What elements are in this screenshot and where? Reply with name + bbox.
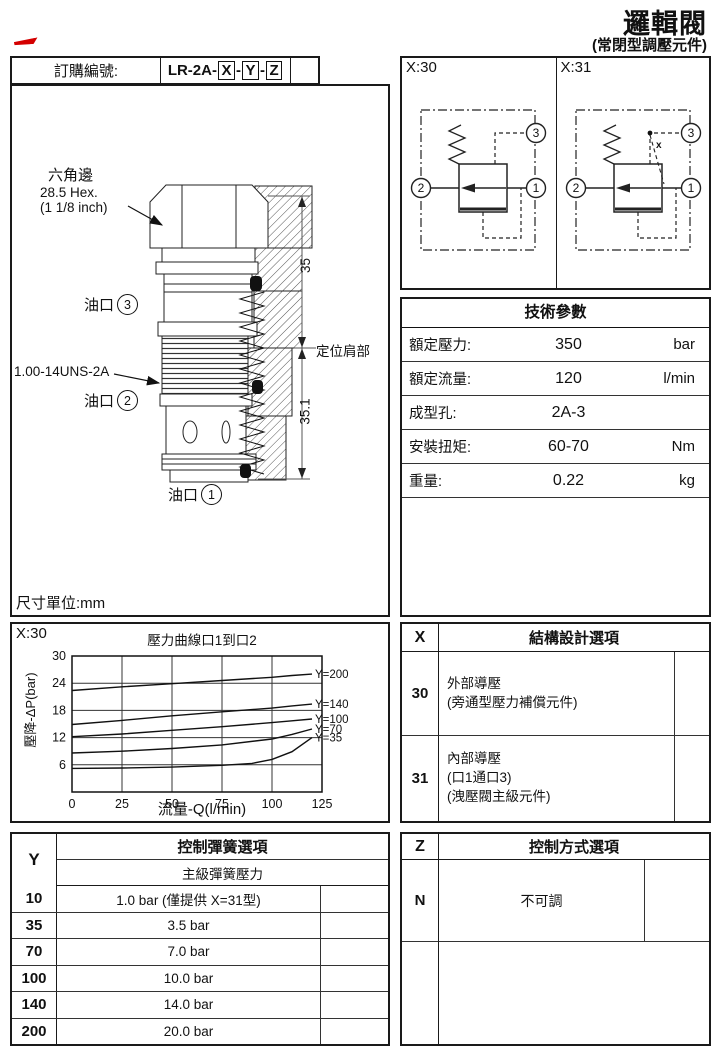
chart-corner-label: X:30 (16, 625, 47, 642)
param-label: 成型孔: (402, 402, 510, 423)
order-code-sep1: - (236, 62, 241, 79)
curve-Y=70 (72, 729, 312, 753)
datasheet-page: 邏輯閥 (常閉型調壓元件) 訂購編號: LR-2A-X-Y-Z (0, 0, 713, 1053)
desc-line: (洩壓閥主級元件) (447, 788, 666, 807)
y-option-code: 35 (12, 913, 57, 939)
hex-label-inch: (1 1/8 inch) (40, 200, 108, 215)
y-tick-label: 18 (52, 703, 66, 717)
param-unit: l/min (627, 370, 709, 387)
pressure-curve-plot: 0255075100125612182430Y=200Y=140Y=100Y=7… (20, 646, 384, 814)
spring (449, 125, 465, 164)
desc-line: 內部導壓 (447, 750, 666, 769)
pilot-junction-dot (647, 131, 652, 136)
y-option-code: 200 (12, 1019, 57, 1045)
x-option-code-31: 31 (402, 736, 439, 821)
z-table-title: 控制方式選項 (439, 834, 709, 860)
param-label: 重量: (402, 470, 510, 491)
y-option-spare-cell (320, 1019, 388, 1045)
port2-number-circle: 2 (117, 390, 138, 411)
hydraulic-symbols-box: X:30 213 X:31 x213 (400, 56, 711, 290)
pilot-line-port3 (650, 133, 682, 164)
curve-Y=140 (72, 704, 312, 724)
order-code-prefix: LR-2A- (168, 62, 217, 79)
desc-line: (旁通型壓力補償元件) (447, 694, 666, 713)
param-value: 350 (510, 336, 627, 354)
y-option-value: 3.5 bar (57, 913, 320, 939)
order-number-box: 訂購編號: LR-2A-X-Y-Z (10, 56, 320, 85)
y-table-subtitle: 主級彈簧壓力 (57, 860, 388, 886)
y-tick-label: 12 (52, 731, 66, 745)
tech-param-row: 安裝扭矩: 60-70 Nm (402, 430, 709, 464)
thread-leader-arrow (114, 374, 159, 383)
param-value: 0.22 (510, 472, 627, 490)
y-option-row: 200 20.0 bar (12, 1019, 388, 1045)
order-code: LR-2A-X-Y-Z (160, 58, 290, 83)
shoulder-label: 定位肩部 (316, 340, 370, 360)
x-table-title: 結構設計選項 (439, 624, 709, 652)
port2-label-text: 油口 (84, 390, 114, 411)
z-option-code-n: N (402, 860, 439, 942)
y-option-row: 140 14.0 bar (12, 992, 388, 1019)
curve-label: Y=35 (315, 733, 342, 745)
y-option-spare-cell (320, 992, 388, 1018)
spring (604, 125, 620, 164)
port1-label: 油口 1 (168, 484, 222, 505)
param-unit: kg (627, 472, 709, 489)
drawing-box: 六角邊 28.5 Hex. (1 1/8 inch) 油口 3 1.00-14U… (10, 84, 390, 617)
y-option-value: 7.0 bar (57, 939, 320, 965)
order-code-z-box: Z (266, 61, 282, 80)
symbol-x30-panel: X:30 213 (402, 58, 556, 288)
dim-35-1: 35.1 (298, 398, 313, 424)
tech-param-row: 重量: 0.22 kg (402, 464, 709, 498)
order-code-x-box: X (218, 61, 235, 80)
port2-circle-digit: 2 (418, 181, 425, 195)
port2-label: 油口 2 (84, 390, 138, 411)
curve-label: Y=140 (315, 699, 349, 711)
pilot-line-port3 (495, 133, 527, 164)
z-table-empty-right (439, 942, 709, 1044)
z-options-table: Z 控制方式選項 N 不可調 (400, 832, 711, 1046)
port1-label-text: 油口 (168, 484, 198, 505)
order-number-label: 訂購編號: (12, 58, 160, 83)
param-unit: bar (627, 336, 709, 353)
y-table-title: 控制彈簧選項 (57, 834, 388, 860)
y-option-spare-cell (320, 966, 388, 992)
hex-label-cn: 六角邊 (48, 164, 108, 185)
curve-label: Y=200 (315, 669, 349, 681)
tech-params-box: 技術參數 額定壓力: 350 bar 額定流量: 120 l/min 成型孔: … (400, 297, 711, 617)
y-option-spare-cell (320, 913, 388, 939)
symbol-x31-label: X:31 (561, 59, 592, 76)
x-option-spare-cell (674, 736, 709, 821)
y-table-col-header: Y (12, 834, 57, 886)
z-option-value-n: 不可調 (439, 860, 644, 942)
curve-Y=35 (72, 738, 312, 769)
curve-Y=200 (72, 674, 312, 690)
port2-circle-digit: 2 (572, 181, 579, 195)
y-option-row: 100 10.0 bar (12, 966, 388, 993)
symbol-x31-panel: X:31 x213 (556, 58, 710, 288)
port1-number-circle: 1 (201, 484, 222, 505)
y-tick-label: 24 (52, 676, 66, 690)
param-label: 安裝扭矩: (402, 436, 510, 457)
port2-hole (183, 421, 197, 443)
desc-line: (口1通口3) (447, 769, 666, 788)
y-options-table: Y 控制彈簧選項 主級彈簧壓力 10 1.0 bar (僅提供 X=31型) 3… (10, 832, 390, 1046)
x-mark: x (656, 140, 662, 151)
red-annotation-mark (14, 37, 39, 46)
symbol-x30-schematic: 213 (403, 88, 555, 283)
x-option-desc-30: 外部導壓 (旁通型壓力補償元件) (439, 652, 674, 736)
y-tick-label: 6 (59, 758, 66, 772)
y-option-row: 70 7.0 bar (12, 939, 388, 966)
pressure-curve-chart-box: X:30 壓力曲線口1到口2 壓降-ΔP(bar) 02550751001256… (10, 622, 390, 823)
z-table-col-header: Z (402, 834, 439, 860)
y-option-code: 70 (12, 939, 57, 965)
hex-label-group: 六角邊 28.5 Hex. (1 1/8 inch) (48, 164, 108, 215)
port3-label: 油口 3 (84, 294, 138, 315)
y-option-code: 140 (12, 992, 57, 1018)
tech-param-row: 額定壓力: 350 bar (402, 328, 709, 362)
valve-schematic-svg: x213 (558, 88, 710, 278)
y-tick-label: 30 (52, 649, 66, 663)
param-value: 60-70 (510, 438, 627, 456)
x-option-spare-cell (674, 652, 709, 736)
order-code-y-box: Y (242, 61, 259, 80)
dim-35: 35 (298, 258, 313, 273)
y-option-value: 10.0 bar (57, 966, 320, 992)
tech-param-row: 成型孔: 2A-3 (402, 396, 709, 430)
valve-schematic-svg: 213 (403, 88, 555, 278)
symbol-x31-schematic: x213 (558, 88, 710, 283)
x-option-desc-31: 內部導壓 (口1通口3) (洩壓閥主級元件) (439, 736, 674, 821)
x-option-code-30: 30 (402, 652, 439, 736)
page-subtitle: (常閉型調壓元件) (592, 34, 707, 55)
y-option-value: 1.0 bar (僅提供 X=31型) (57, 886, 320, 912)
x-tick-label: 0 (69, 797, 76, 811)
order-code-sep2: - (260, 62, 265, 79)
thread-section (162, 336, 248, 394)
hex-head (150, 185, 268, 248)
y-option-code: 10 (12, 886, 57, 912)
z-table-empty-left (402, 942, 439, 1044)
param-label: 額定流量: (402, 368, 510, 389)
units-note: 尺寸單位:mm (16, 592, 105, 613)
y-option-row: 10 1.0 bar (僅提供 X=31型) (12, 886, 388, 913)
x-table-col-header: X (402, 624, 439, 652)
port3-circle-digit: 3 (687, 126, 694, 140)
y-option-value: 20.0 bar (57, 1019, 320, 1045)
y-option-spare-cell (320, 886, 388, 912)
y-option-row: 35 3.5 bar (12, 913, 388, 940)
order-box-empty-cell (290, 58, 318, 83)
z-option-spare-cell (644, 860, 709, 942)
y-option-spare-cell (320, 939, 388, 965)
desc-line: 外部導壓 (447, 675, 666, 694)
param-value: 120 (510, 370, 627, 388)
symbol-x30-label: X:30 (406, 59, 437, 76)
chart-x-axis-label: 流量-Q(l/min) (102, 798, 302, 819)
y-option-code: 100 (12, 966, 57, 992)
port3-number-circle: 3 (117, 294, 138, 315)
y-option-value: 14.0 bar (57, 992, 320, 1018)
port1-circle-digit: 1 (533, 181, 540, 195)
param-label: 額定壓力: (402, 334, 510, 355)
port1-circle-digit: 1 (687, 181, 694, 195)
x-options-table: X 結構設計選項 30 外部導壓 (旁通型壓力補償元件) 31 內部導壓 (口1… (400, 622, 711, 823)
x-tick-label: 125 (312, 797, 333, 811)
param-value: 2A-3 (510, 404, 627, 422)
port3-circle-digit: 3 (533, 126, 540, 140)
thread-spec-label: 1.00-14UNS-2A (14, 364, 109, 379)
y-table-header: Y 控制彈簧選項 主級彈簧壓力 (12, 834, 388, 886)
tech-params-title: 技術參數 (402, 299, 709, 328)
port3-label-text: 油口 (84, 294, 114, 315)
tech-param-row: 額定流量: 120 l/min (402, 362, 709, 396)
param-unit: Nm (627, 438, 709, 455)
hex-label-size: 28.5 Hex. (40, 185, 108, 200)
